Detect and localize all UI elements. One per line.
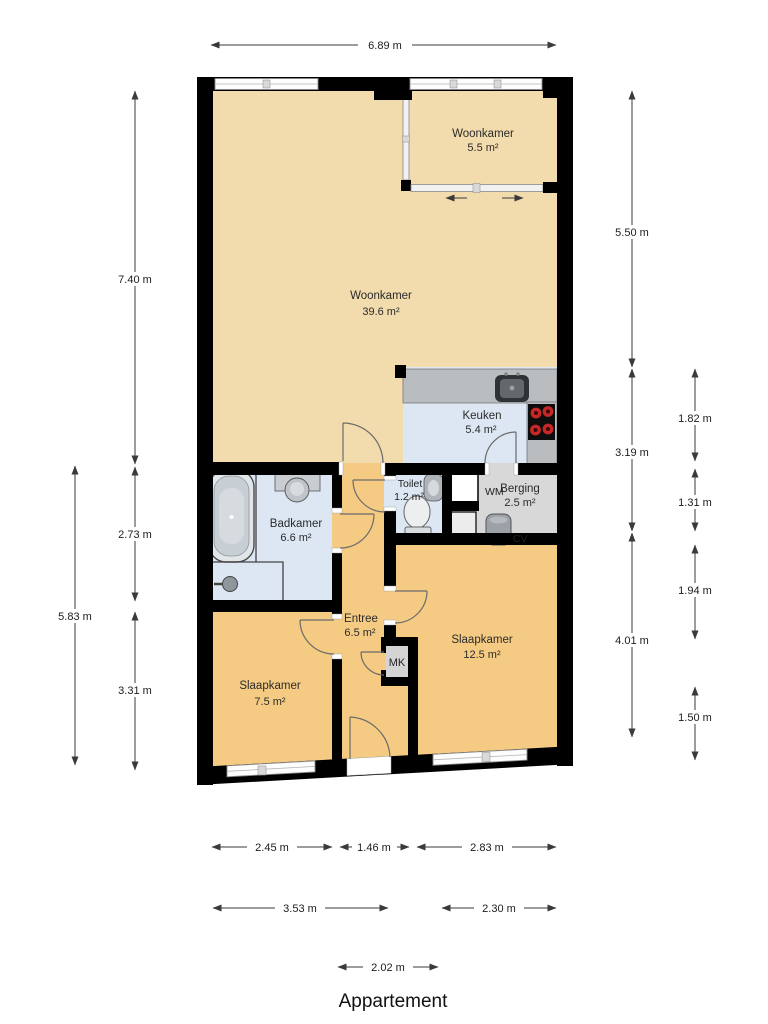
label-storage-area: 2.5 m² <box>504 497 536 509</box>
label-living-area: 39.6 m² <box>362 306 400 318</box>
dimension-right-outer-2: 1.31 m <box>670 469 720 531</box>
faucet-icon <box>516 372 520 376</box>
window-mullion <box>450 80 457 88</box>
label-hall-name: Entree <box>344 613 378 625</box>
wall-hall-bedroom-upper <box>384 545 396 590</box>
label-storage-name: Berging <box>500 483 540 495</box>
floor-plan: Woonkamer 5.5 m² Woonkamer 39.6 m² Keuke… <box>0 0 768 1024</box>
dimension-top-width: 6.89 m <box>211 38 556 52</box>
wall-kitchen-bottom-left <box>386 463 487 475</box>
glass-post <box>401 180 411 191</box>
glass-mullion <box>473 184 480 193</box>
bathtub-drain <box>230 515 234 519</box>
label-bedroom-large-name: Slaapkamer <box>451 634 513 646</box>
wall-storage-bedroom <box>384 533 557 545</box>
svg-text:1.82 m: 1.82 m <box>678 413 712 425</box>
wall-top-step <box>374 91 412 100</box>
wall-kitchen-stub <box>395 365 406 378</box>
window-mullion <box>482 753 490 762</box>
label-serre-area: 5.5 m² <box>467 142 499 154</box>
glass-post-right <box>543 182 558 193</box>
label-bedroom-small-area: 7.5 m² <box>254 696 286 708</box>
label-living-name: Woonkamer <box>350 290 412 302</box>
svg-text:7.40 m: 7.40 m <box>118 274 152 286</box>
label-boiler: CV <box>513 533 528 545</box>
window-mullion <box>263 80 270 88</box>
dimension-bottom-row1-2: 1.46 m <box>340 840 409 854</box>
dimension-bottom-row2-1: 3.53 m <box>213 901 388 915</box>
dimension-right-1: 5.50 m <box>607 91 657 367</box>
dimension-left-2: 2.73 m <box>110 467 160 601</box>
dimension-bottom-row1-3: 2.83 m <box>417 840 556 854</box>
label-bedroom-large-area: 12.5 m² <box>463 649 501 661</box>
dimension-left-1: 7.40 m <box>110 91 160 464</box>
window-top-left <box>215 79 318 90</box>
window-mullion <box>494 80 501 88</box>
label-toilet-area: 1.2 m² <box>394 491 424 503</box>
washbasin-bowl <box>290 482 304 496</box>
kitchen-sink-drain <box>510 386 515 391</box>
label-toilet-name: Toilet <box>398 478 423 490</box>
dimension-right-3: 4.01 m <box>607 533 657 737</box>
svg-text:6.89 m: 6.89 m <box>368 40 402 52</box>
dimension-right-2: 3.19 m <box>607 369 657 531</box>
svg-text:5.83 m: 5.83 m <box>58 611 92 623</box>
svg-text:2.30 m: 2.30 m <box>482 903 516 915</box>
svg-text:5.50 m: 5.50 m <box>615 227 649 239</box>
wall-living-bathroom <box>197 462 340 475</box>
svg-text:3.19 m: 3.19 m <box>615 447 649 459</box>
dimension-bottom-row1-1: 2.45 m <box>212 840 332 854</box>
dimension-right-outer-3: 1.94 m <box>670 545 720 639</box>
svg-text:3.31 m: 3.31 m <box>118 685 152 697</box>
svg-text:2.83 m: 2.83 m <box>470 842 504 854</box>
wall-hall-toilet-upper <box>384 463 396 478</box>
shower-head-icon <box>223 577 238 592</box>
dimension-right-outer-1: 1.82 m <box>670 369 720 461</box>
label-kitchen-name: Keuken <box>462 410 501 422</box>
floors <box>213 91 557 767</box>
dimension-right-outer-4: 1.50 m <box>670 687 720 760</box>
dimension-bottom-row3: 2.02 m <box>338 960 438 974</box>
wall-left <box>197 77 213 785</box>
corner-sink-bowl <box>428 480 439 496</box>
label-bedroom-small-name: Slaapkamer <box>239 680 301 692</box>
dimension-left-outer: 5.83 m <box>50 466 100 765</box>
label-hall-area: 6.5 m² <box>344 627 376 639</box>
label-serre-name: Woonkamer <box>452 128 514 140</box>
dimension-bottom-row2-2: 2.30 m <box>442 901 556 915</box>
svg-text:4.01 m: 4.01 m <box>615 635 649 647</box>
dimension-left-3: 3.31 m <box>110 612 160 770</box>
svg-text:1.31 m: 1.31 m <box>678 497 712 509</box>
svg-text:2.02 m: 2.02 m <box>371 962 405 974</box>
wall-kitchen-bottom-right <box>518 463 557 475</box>
svg-text:2.73 m: 2.73 m <box>118 529 152 541</box>
glass-mullion <box>403 136 410 142</box>
wall-right <box>557 77 573 766</box>
label-bathroom-name: Badkamer <box>270 518 323 530</box>
label-bathroom-area: 6.6 m² <box>280 532 312 544</box>
label-washing-machine: WM <box>485 486 504 498</box>
svg-text:1.50 m: 1.50 m <box>678 712 712 724</box>
svg-text:1.94 m: 1.94 m <box>678 585 712 597</box>
label-kitchen-area: 5.4 m² <box>465 424 497 436</box>
wall-bedroom-left-lower <box>408 637 418 758</box>
svg-text:2.45 m: 2.45 m <box>255 842 289 854</box>
faucet-icon <box>504 372 508 376</box>
label-meter-cupboard: MK <box>389 657 406 669</box>
window-top-right <box>410 79 542 90</box>
svg-text:1.46 m: 1.46 m <box>357 842 391 854</box>
boiler-top <box>490 517 508 524</box>
svg-text:3.53 m: 3.53 m <box>283 903 317 915</box>
wall-bathroom-bedroom <box>197 600 342 612</box>
window-mullion <box>258 766 266 775</box>
kitchen-counter <box>403 369 557 403</box>
wall-hall-left-lower <box>332 654 342 762</box>
page-title: Appartement <box>339 991 449 1012</box>
